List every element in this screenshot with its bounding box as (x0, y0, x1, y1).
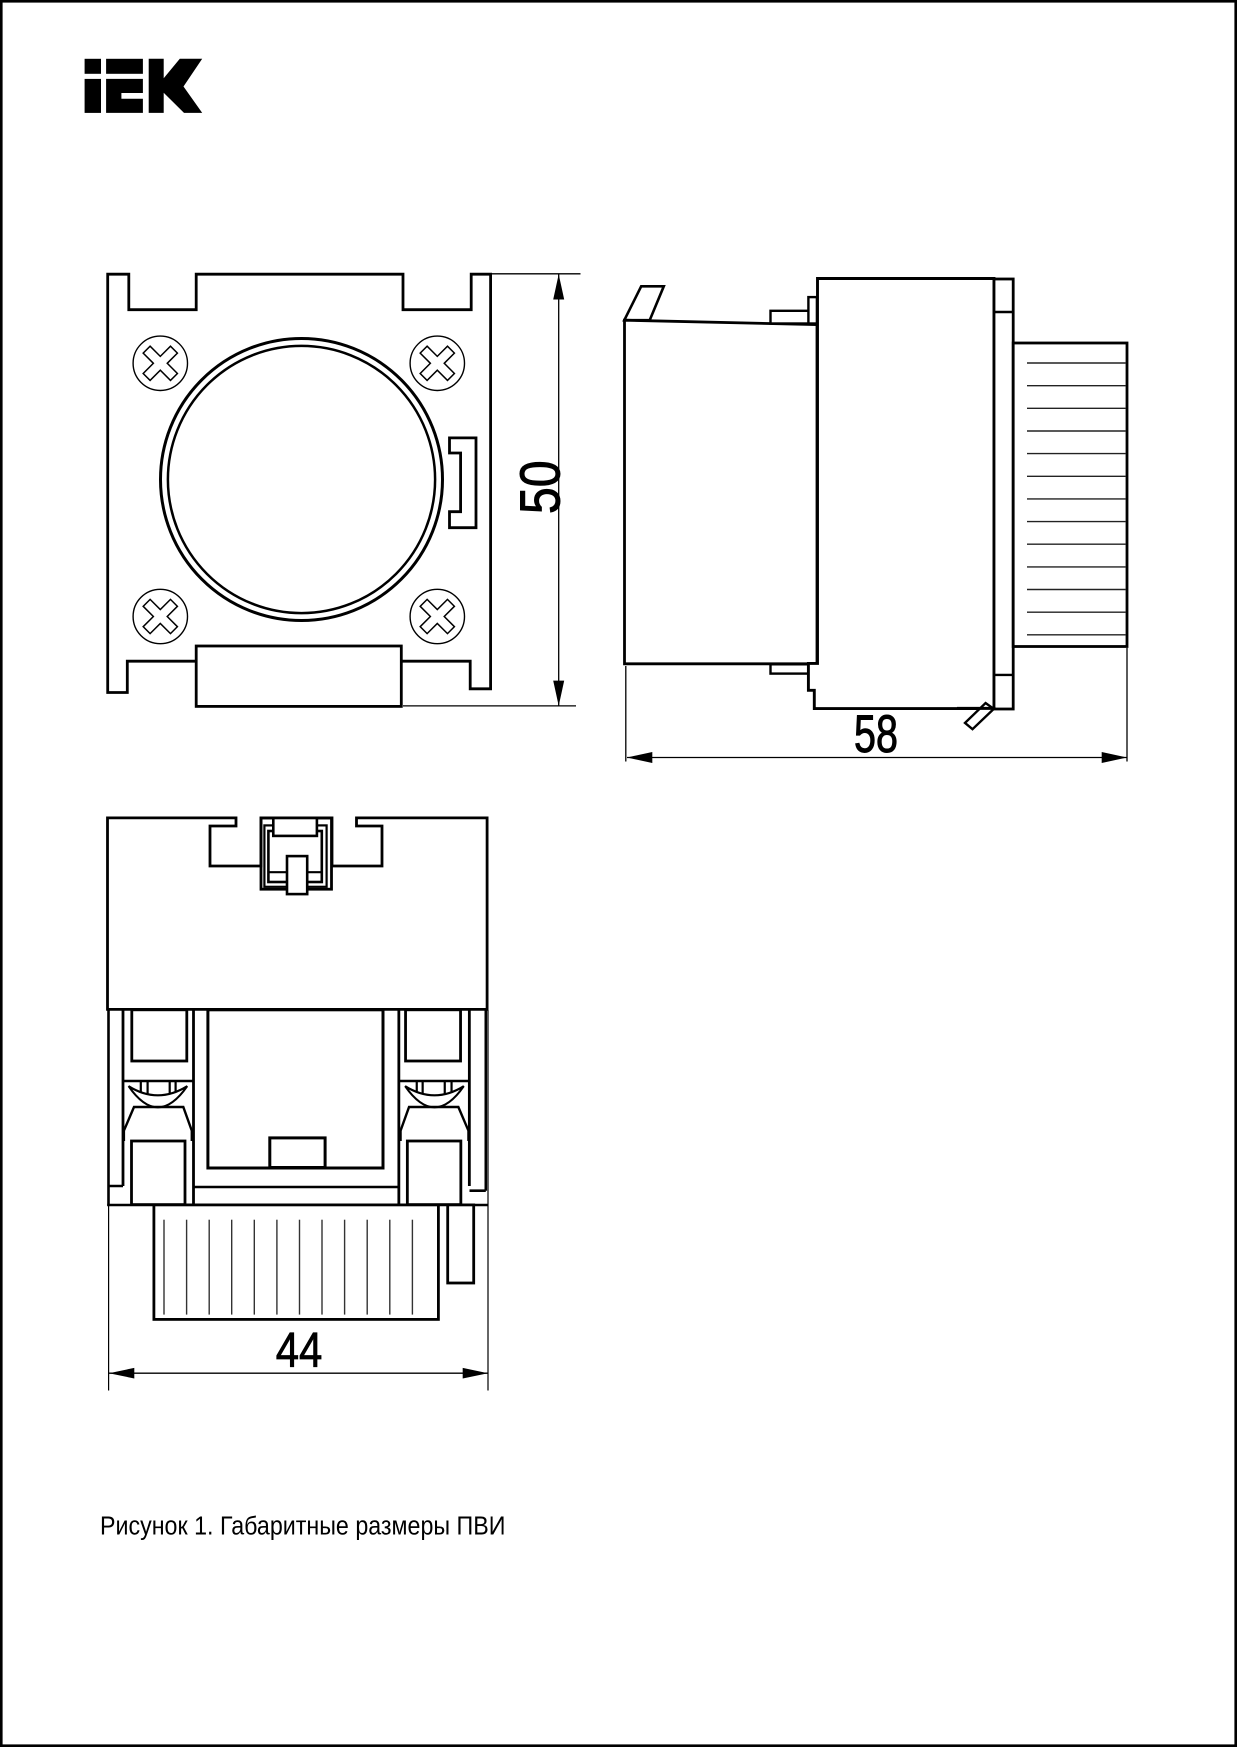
svg-text:44: 44 (276, 1322, 323, 1377)
svg-text:Рисунок 1. Габаритные размеры: Рисунок 1. Габаритные размеры ПВИ (100, 1512, 505, 1540)
svg-text:50: 50 (509, 460, 573, 514)
svg-text:58: 58 (854, 705, 898, 764)
